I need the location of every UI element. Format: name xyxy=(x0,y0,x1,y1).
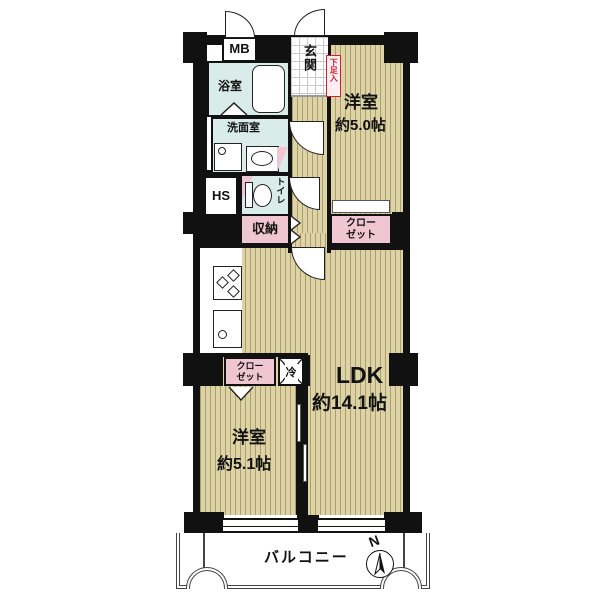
closet-sub-line2: ゼット xyxy=(236,372,263,382)
closet-main-line2: ゼット xyxy=(346,230,376,241)
ldk-name: LDK xyxy=(336,362,383,388)
hs-label: HS xyxy=(212,189,230,204)
window-left xyxy=(223,518,298,533)
bedroom2-size: 約5.1帖 xyxy=(217,456,271,474)
meter-box-door-arc xyxy=(225,11,255,38)
balcony-divider-right xyxy=(403,533,405,569)
washroom-label: 洗面室 xyxy=(227,122,260,135)
window-right xyxy=(318,518,385,533)
pillar-bottom-right xyxy=(384,512,422,535)
pillar-top-left xyxy=(183,32,207,63)
bathtub xyxy=(252,65,285,113)
kitchen-sink xyxy=(213,310,242,348)
closet-main-line1: クロー xyxy=(346,218,376,229)
refrigerator-space: 冷 xyxy=(278,357,304,386)
balcony-label: バルコニー xyxy=(264,549,349,566)
closet-sub-fold-door xyxy=(228,386,254,402)
sink-faucet xyxy=(218,330,227,339)
washing-machine-dial xyxy=(218,147,226,155)
bathroom-fold-door xyxy=(220,102,248,116)
entrance-door-arc xyxy=(294,9,325,36)
closet-sub: クロー ゼット xyxy=(224,357,276,386)
shoe-box-label: 下足入 xyxy=(329,58,338,82)
ldk-size: 約14.1帖 xyxy=(312,393,387,415)
pillar-bottom-left xyxy=(184,512,224,535)
floor-plan: 玄関 MB 下足入 浴室 洗面室 HS トイレ 収納 洋室 約5.0帖 クロー xyxy=(0,0,600,600)
closet-sub-line1: クロー xyxy=(236,361,263,371)
vanity-basin xyxy=(251,151,273,166)
bedroom2-floor xyxy=(200,386,297,515)
toilet-label: トイレ xyxy=(275,177,285,204)
wall-closet-right xyxy=(392,212,404,247)
storage-bifold-door xyxy=(289,215,302,245)
pillar-mid-right xyxy=(389,353,418,386)
meter-box-label: MB xyxy=(229,42,249,57)
storage-label: 収納 xyxy=(252,222,278,237)
toilet-tank xyxy=(245,182,253,208)
sliding-door-panel-2 xyxy=(303,444,307,482)
bathroom-label: 浴室 xyxy=(218,80,242,94)
wall-entrance-left xyxy=(257,35,292,63)
pillar-bottom-middle xyxy=(297,515,319,535)
wall-right xyxy=(403,35,410,515)
hs-shaft: HS xyxy=(204,176,238,216)
pillar-lower-left xyxy=(183,353,223,386)
bedroom1-size: 約5.0帖 xyxy=(335,117,386,134)
closet-main-door xyxy=(332,200,390,213)
meter-box: MB xyxy=(222,37,257,62)
toilet-bowl xyxy=(253,184,272,207)
shoe-box: 下足入 xyxy=(326,55,341,97)
pillar-top-right xyxy=(384,32,418,63)
refrigerator-label: 冷 xyxy=(285,364,298,380)
entrance-label: 玄関 xyxy=(301,44,316,72)
bedroom2-name: 洋室 xyxy=(232,428,266,448)
storage-closet: 収納 xyxy=(240,214,290,245)
sliding-door-panel-1 xyxy=(297,404,301,442)
closet-main: クロー ゼット xyxy=(330,214,392,245)
bedroom1-name: 洋室 xyxy=(344,93,378,113)
compass-icon xyxy=(366,550,394,578)
balcony-divider-left xyxy=(203,533,205,569)
